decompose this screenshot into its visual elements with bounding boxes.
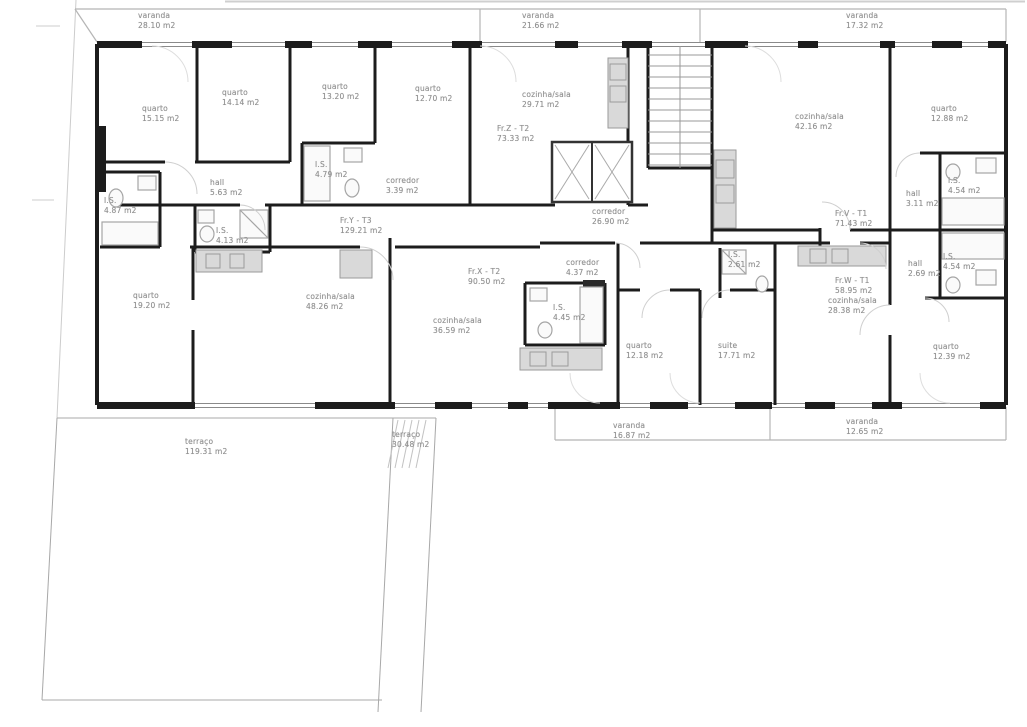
room-name: quarto [626,341,664,351]
room-label-fr-v-t1: Fr.V - T171.43 m2 [835,209,873,229]
room-label-quarto: quarto19.20 m2 [133,291,171,311]
room-area: 2.69 m2 [908,269,941,279]
room-name: I.S. [943,252,976,262]
room-label-cozinha-sala: cozinha/sala36.59 m2 [433,316,482,336]
room-label-cozinha-sala: cozinha/sala48.26 m2 [306,292,355,312]
room-area: 12.18 m2 [626,351,664,361]
room-area: 13.20 m2 [322,92,360,102]
room-name: terraço [392,430,430,440]
room-label-terra-o: terraço30.48 m2 [392,430,430,450]
room-name: varanda [522,11,560,21]
room-label-fr-w-t1: Fr.W - T158.95 m2 [835,276,873,296]
room-area: 2.61 m2 [728,260,761,270]
room-area: 17.32 m2 [846,21,884,31]
room-name: I.S. [104,196,137,206]
room-label-terra-o: terraço119.31 m2 [185,437,228,457]
room-label-i-s-: I.S.4.79 m2 [315,160,348,180]
room-area: 4.13 m2 [216,236,249,246]
room-area: 12.39 m2 [933,352,971,362]
room-area: 12.70 m2 [415,94,453,104]
room-label-suite: suite17.71 m2 [718,341,756,361]
room-area: 12.65 m2 [846,427,884,437]
room-label-fr-y-t3: Fr.Y - T3129.21 m2 [340,216,383,236]
room-label-varanda: varanda28.10 m2 [138,11,176,31]
room-area: 58.95 m2 [835,286,873,296]
room-area: 28.10 m2 [138,21,176,31]
room-name: quarto [322,82,360,92]
room-name: quarto [133,291,171,301]
room-label-i-s-: I.S.4.13 m2 [216,226,249,246]
room-area: 26.90 m2 [592,217,630,227]
room-area: 19.20 m2 [133,301,171,311]
room-area: 36.59 m2 [433,326,482,336]
room-name: cozinha/sala [828,296,877,306]
room-area: 90.50 m2 [468,277,506,287]
room-label-quarto: quarto12.88 m2 [931,104,969,124]
room-label-cozinha-sala: cozinha/sala28.38 m2 [828,296,877,316]
room-labels-layer: varanda28.10 m2varanda21.66 m2varanda17.… [0,0,1027,727]
room-label-i-s-: I.S.4.45 m2 [553,303,586,323]
room-name: quarto [142,104,180,114]
room-label-quarto: quarto12.39 m2 [933,342,971,362]
room-area: 15.15 m2 [142,114,180,124]
room-name: I.S. [216,226,249,236]
room-area: 42.16 m2 [795,122,844,132]
room-label-hall: hall3.11 m2 [906,189,939,209]
room-name: quarto [222,88,260,98]
room-area: 16.87 m2 [613,431,651,441]
room-area: 28.38 m2 [828,306,877,316]
room-area: 4.79 m2 [315,170,348,180]
room-label-corredor: corredor4.37 m2 [566,258,599,278]
room-name: I.S. [948,176,981,186]
room-area: 4.87 m2 [104,206,137,216]
room-name: terraço [185,437,228,447]
room-area: 17.71 m2 [718,351,756,361]
room-label-hall: hall2.69 m2 [908,259,941,279]
room-name: Fr.V - T1 [835,209,873,219]
room-area: 30.48 m2 [392,440,430,450]
room-label-i-s-: I.S.2.61 m2 [728,250,761,270]
room-area: 4.37 m2 [566,268,599,278]
room-label-cozinha-sala: cozinha/sala29.71 m2 [522,90,571,110]
room-name: corredor [592,207,630,217]
room-name: quarto [415,84,453,94]
room-area: 14.14 m2 [222,98,260,108]
room-name: suite [718,341,756,351]
room-name: cozinha/sala [522,90,571,100]
room-name: hall [906,189,939,199]
room-name: varanda [846,11,884,21]
room-name: Fr.Z - T2 [497,124,535,134]
room-area: 48.26 m2 [306,302,355,312]
room-label-corredor: corredor3.39 m2 [386,176,419,196]
room-area: 3.11 m2 [906,199,939,209]
room-name: I.S. [553,303,586,313]
room-area: 73.33 m2 [497,134,535,144]
room-label-hall: hall5.63 m2 [210,178,243,198]
room-name: Fr.X - T2 [468,267,506,277]
room-name: varanda [613,421,651,431]
room-name: hall [908,259,941,269]
room-label-i-s-: I.S.4.54 m2 [948,176,981,196]
room-name: I.S. [728,250,761,260]
room-area: 4.54 m2 [943,262,976,272]
room-label-varanda: varanda12.65 m2 [846,417,884,437]
room-area: 3.39 m2 [386,186,419,196]
room-name: Fr.Y - T3 [340,216,383,226]
room-area: 21.66 m2 [522,21,560,31]
room-name: hall [210,178,243,188]
room-area: 12.88 m2 [931,114,969,124]
room-area: 129.21 m2 [340,226,383,236]
room-area: 5.63 m2 [210,188,243,198]
room-label-fr-x-t2: Fr.X - T290.50 m2 [468,267,506,287]
room-name: quarto [933,342,971,352]
room-area: 119.31 m2 [185,447,228,457]
room-area: 71.43 m2 [835,219,873,229]
room-area: 29.71 m2 [522,100,571,110]
room-label-varanda: varanda21.66 m2 [522,11,560,31]
room-label-quarto: quarto12.70 m2 [415,84,453,104]
room-name: cozinha/sala [433,316,482,326]
room-label-quarto: quarto12.18 m2 [626,341,664,361]
room-name: varanda [138,11,176,21]
room-area: 4.54 m2 [948,186,981,196]
room-label-varanda: varanda16.87 m2 [613,421,651,441]
room-name: varanda [846,417,884,427]
room-label-fr-z-t2: Fr.Z - T273.33 m2 [497,124,535,144]
room-name: Fr.W - T1 [835,276,873,286]
room-name: I.S. [315,160,348,170]
room-name: cozinha/sala [306,292,355,302]
room-name: corredor [566,258,599,268]
room-label-i-s-: I.S.4.87 m2 [104,196,137,216]
room-label-cozinha-sala: cozinha/sala42.16 m2 [795,112,844,132]
room-label-quarto: quarto13.20 m2 [322,82,360,102]
room-label-quarto: quarto14.14 m2 [222,88,260,108]
room-label-corredor: corredor26.90 m2 [592,207,630,227]
room-area: 4.45 m2 [553,313,586,323]
floor-plan-sheet: varanda28.10 m2varanda21.66 m2varanda17.… [0,0,1027,727]
room-name: quarto [931,104,969,114]
room-label-quarto: quarto15.15 m2 [142,104,180,124]
room-name: corredor [386,176,419,186]
room-name: cozinha/sala [795,112,844,122]
room-label-i-s-: I.S.4.54 m2 [943,252,976,272]
room-label-varanda: varanda17.32 m2 [846,11,884,31]
